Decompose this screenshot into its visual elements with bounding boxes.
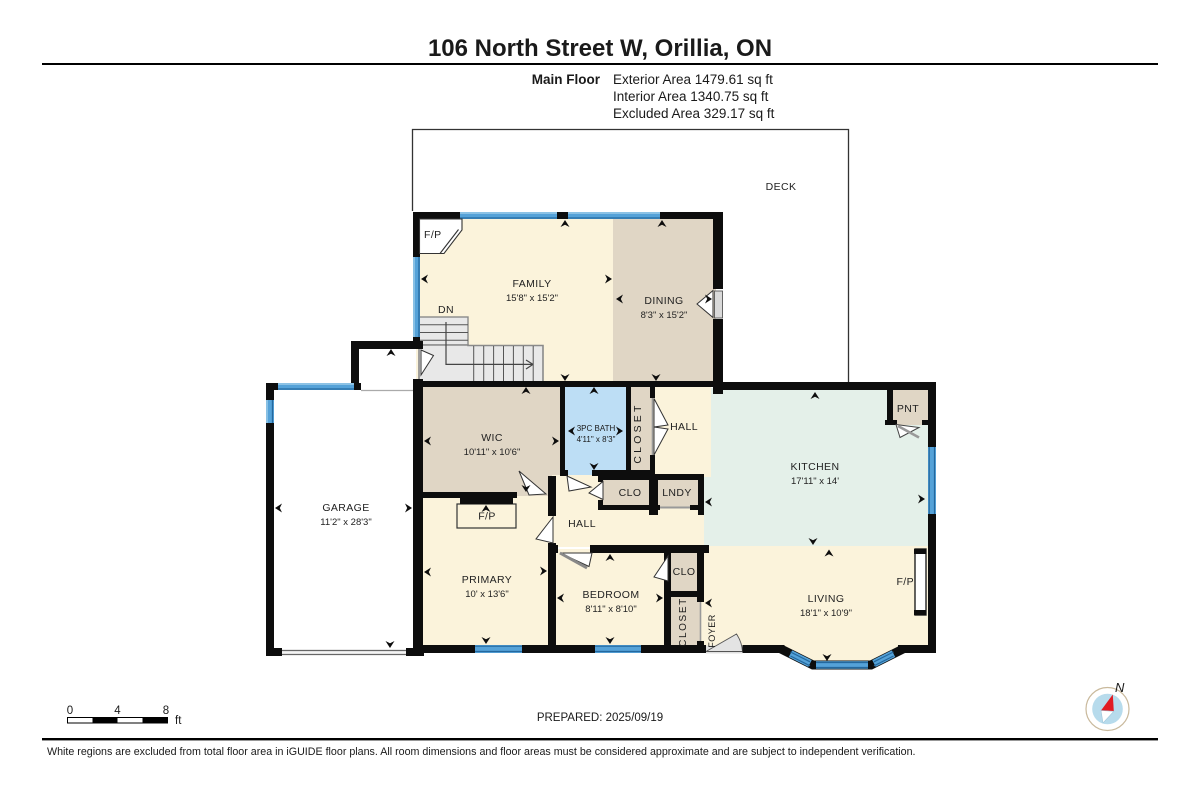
svg-text:CLOSET: CLOSET [632,402,644,463]
svg-text:White regions are excluded fro: White regions are excluded from total fl… [47,746,916,758]
svg-text:DECK: DECK [766,181,797,193]
svg-text:DN: DN [438,304,454,316]
svg-text:PREPARED: 2025/09/19: PREPARED: 2025/09/19 [537,712,663,724]
svg-text:Interior Area 1340.75 sq ft: Interior Area 1340.75 sq ft [613,89,769,104]
svg-text:GARAGE: GARAGE [322,502,369,514]
svg-text:11'2" x 28'3": 11'2" x 28'3" [320,517,371,528]
svg-text:Exterior Area 1479.61 sq ft: Exterior Area 1479.61 sq ft [613,72,773,87]
svg-text:Excluded Area 329.17 sq ft: Excluded Area 329.17 sq ft [613,106,775,121]
svg-text:8'11" x 8'10": 8'11" x 8'10" [585,604,636,615]
svg-text:3PC BATH: 3PC BATH [577,424,616,433]
svg-text:CLOSET: CLOSET [678,597,689,647]
svg-text:LNDY: LNDY [662,487,692,499]
svg-text:PRIMARY: PRIMARY [462,574,512,586]
svg-text:FAMILY: FAMILY [513,278,552,290]
svg-text:10'11" x 10'6": 10'11" x 10'6" [464,447,521,458]
svg-text:KITCHEN: KITCHEN [791,461,840,473]
svg-text:18'1" x 10'9": 18'1" x 10'9" [800,608,852,619]
svg-text:106 North Street W, Orillia, O: 106 North Street W, Orillia, ON [428,35,772,62]
svg-text:HALL: HALL [670,421,698,433]
svg-text:17'11" x 14': 17'11" x 14' [791,476,839,487]
svg-text:10' x 13'6": 10' x 13'6" [465,589,508,600]
svg-text:WIC: WIC [481,432,503,444]
svg-text:CLO: CLO [619,487,642,499]
svg-text:FOYER: FOYER [707,614,717,648]
svg-text:Main Floor: Main Floor [532,72,601,87]
svg-text:F/P: F/P [896,576,914,588]
svg-text:4'11" x 8'3": 4'11" x 8'3" [577,435,616,444]
svg-text:8'3" x 15'2": 8'3" x 15'2" [641,310,688,321]
svg-text:DINING: DINING [644,295,683,307]
svg-text:PNT: PNT [897,403,919,415]
svg-text:LIVING: LIVING [808,593,845,605]
svg-text:BEDROOM: BEDROOM [582,589,639,601]
svg-text:0: 0 [67,705,73,717]
svg-text:4: 4 [114,705,121,717]
svg-text:15'8" x 15'2": 15'8" x 15'2" [506,293,558,304]
svg-text:HALL: HALL [568,518,596,530]
svg-text:ft: ft [175,715,182,727]
svg-text:F/P: F/P [478,511,496,523]
svg-text:F/P: F/P [424,229,442,241]
svg-text:N: N [1115,680,1125,695]
svg-text:CLO: CLO [673,566,696,578]
svg-text:8: 8 [163,705,169,717]
